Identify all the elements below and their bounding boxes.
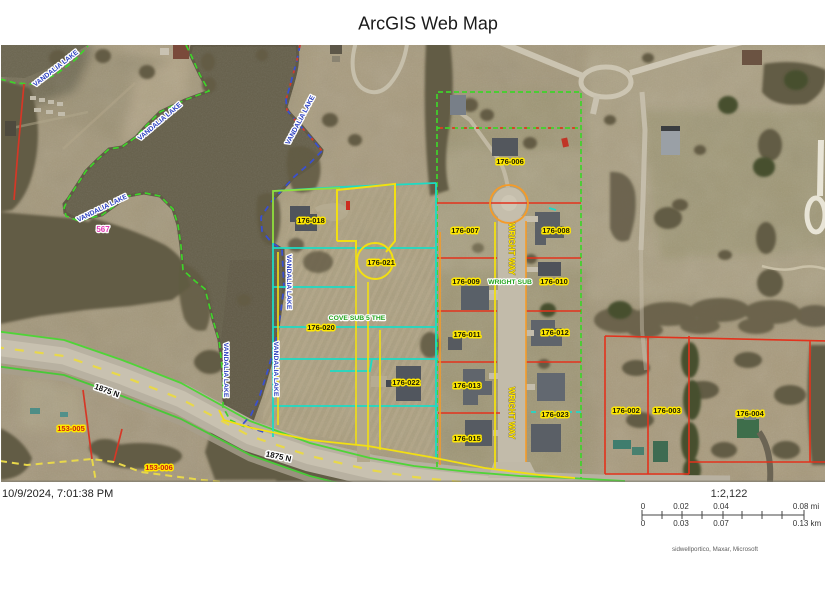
svg-text:176-004: 176-004 — [736, 409, 764, 418]
svg-text:176-015: 176-015 — [453, 434, 481, 443]
svg-text:0.03: 0.03 — [673, 519, 689, 528]
svg-text:0.13 km: 0.13 km — [793, 519, 822, 528]
svg-text:WRIGHT WAY: WRIGHT WAY — [507, 223, 516, 276]
svg-text:0.07: 0.07 — [713, 519, 729, 528]
svg-text:VANDALIA LAKE: VANDALIA LAKE — [222, 343, 229, 398]
svg-text:176-007: 176-007 — [451, 226, 479, 235]
svg-text:0.02: 0.02 — [673, 502, 689, 511]
svg-text:176-021: 176-021 — [367, 258, 395, 267]
svg-text:WRIGHT WAY: WRIGHT WAY — [507, 387, 516, 440]
svg-text:567: 567 — [96, 225, 110, 234]
svg-text:1:2,122: 1:2,122 — [711, 488, 748, 500]
svg-text:WRIGHT SUB: WRIGHT SUB — [488, 279, 532, 286]
svg-text:176-012: 176-012 — [541, 328, 569, 337]
svg-text:176-010: 176-010 — [540, 277, 568, 286]
svg-text:176-022: 176-022 — [392, 378, 420, 387]
svg-text:176-013: 176-013 — [453, 381, 481, 390]
svg-text:VANDALIA LAKE: VANDALIA LAKE — [285, 255, 292, 310]
svg-text:0: 0 — [641, 519, 646, 528]
svg-text:176-006: 176-006 — [496, 157, 524, 166]
svg-text:0: 0 — [641, 502, 646, 511]
svg-text:176-008: 176-008 — [542, 226, 570, 235]
svg-text:176-020: 176-020 — [307, 323, 335, 332]
svg-text:176-002: 176-002 — [612, 406, 640, 415]
svg-text:176-003: 176-003 — [653, 406, 681, 415]
svg-text:0.08 mi: 0.08 mi — [793, 502, 819, 511]
svg-text:176-018: 176-018 — [297, 216, 325, 225]
svg-text:153-006: 153-006 — [145, 463, 173, 472]
svg-text:0.04: 0.04 — [713, 502, 729, 511]
svg-text:176-023: 176-023 — [541, 410, 569, 419]
svg-text:COVE SUB 5 THE: COVE SUB 5 THE — [329, 315, 386, 322]
svg-text:153-005: 153-005 — [57, 424, 85, 433]
svg-text:sidwellportico, Maxar, Microso: sidwellportico, Maxar, Microsoft — [672, 546, 758, 553]
svg-text:176-009: 176-009 — [452, 277, 480, 286]
svg-text:176-011: 176-011 — [453, 330, 480, 339]
svg-text:VANDALIA LAKE: VANDALIA LAKE — [272, 342, 279, 397]
svg-text:10/9/2024, 7:01:38 PM: 10/9/2024, 7:01:38 PM — [2, 488, 113, 500]
svg-text:ArcGIS Web Map: ArcGIS Web Map — [358, 14, 498, 34]
